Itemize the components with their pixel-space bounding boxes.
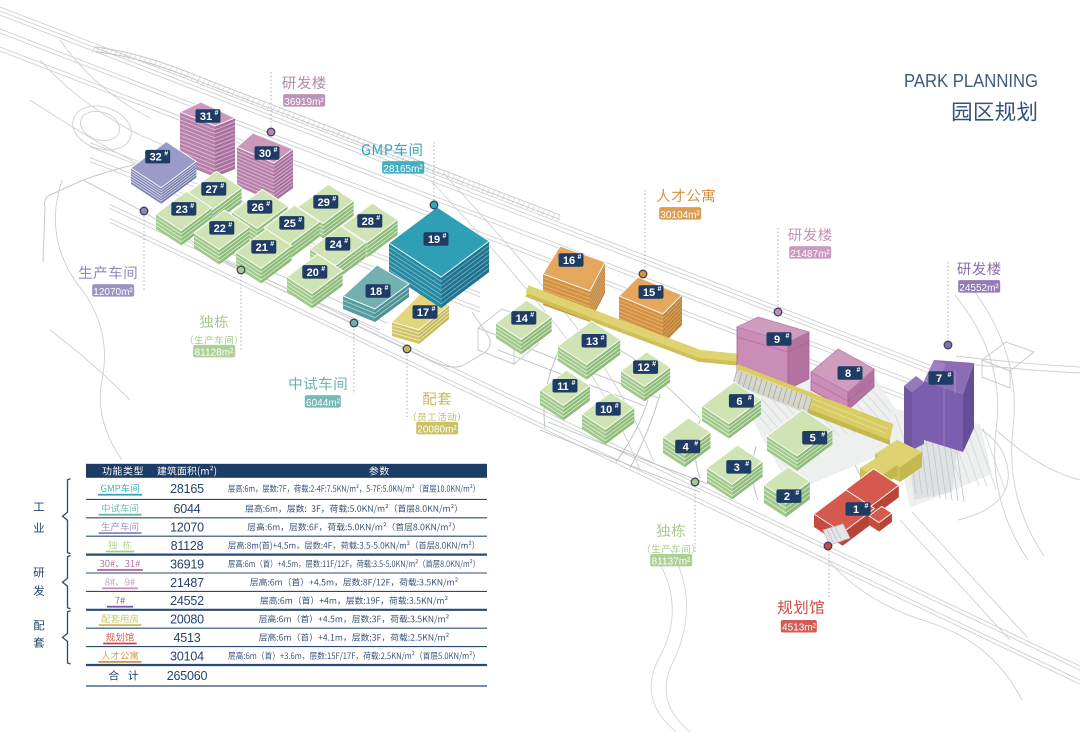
- svg-text:21487: 21487: [170, 576, 204, 590]
- svg-text:24: 24: [330, 239, 343, 251]
- svg-text:#: #: [578, 254, 582, 261]
- svg-text:17: 17: [417, 307, 429, 319]
- svg-text:#: #: [220, 183, 224, 190]
- svg-text:PARK PLANNING: PARK PLANNING: [904, 70, 1038, 91]
- svg-text:#: #: [748, 395, 752, 402]
- svg-text:#: #: [658, 286, 662, 293]
- svg-text:23: 23: [176, 204, 188, 216]
- svg-text:26: 26: [252, 202, 264, 214]
- svg-text:30104m²: 30104m²: [660, 210, 700, 221]
- svg-text:4513m²: 4513m²: [782, 623, 817, 634]
- svg-text:36919m²: 36919m²: [284, 97, 324, 108]
- svg-text:27: 27: [206, 184, 218, 196]
- svg-text:4513: 4513: [173, 631, 200, 645]
- svg-text:#: #: [321, 266, 325, 273]
- svg-text:12070m²: 12070m²: [93, 287, 133, 298]
- svg-text:#: #: [344, 238, 348, 245]
- svg-text:81128m²: 81128m²: [195, 348, 234, 359]
- svg-text:20080: 20080: [170, 613, 204, 627]
- svg-text:22: 22: [214, 223, 226, 235]
- svg-text:6044m²: 6044m²: [306, 398, 341, 409]
- svg-text:10: 10: [600, 404, 612, 416]
- svg-text:#: #: [948, 372, 952, 379]
- svg-text:28165: 28165: [170, 482, 204, 496]
- svg-text:4: 4: [683, 442, 690, 454]
- svg-text:#: #: [652, 361, 656, 368]
- svg-text:#: #: [865, 503, 869, 510]
- svg-text:#: #: [274, 147, 278, 154]
- svg-text:5: 5: [810, 433, 816, 445]
- svg-text:#: #: [821, 432, 825, 439]
- svg-text:#: #: [857, 367, 861, 374]
- svg-text:11: 11: [557, 381, 569, 393]
- svg-text:32: 32: [150, 152, 162, 164]
- svg-text:13: 13: [586, 336, 598, 348]
- svg-text:16: 16: [563, 255, 575, 267]
- svg-text:12070: 12070: [170, 521, 204, 535]
- svg-text:24552: 24552: [170, 594, 204, 608]
- svg-text:#: #: [190, 203, 194, 210]
- svg-text:30104: 30104: [170, 649, 204, 663]
- svg-text:#: #: [298, 217, 302, 224]
- svg-text:8: 8: [845, 368, 851, 380]
- svg-text:19: 19: [428, 234, 440, 246]
- svg-text:6044: 6044: [173, 502, 200, 516]
- svg-text:31: 31: [200, 111, 212, 123]
- svg-text:14: 14: [516, 313, 529, 325]
- svg-text:20: 20: [307, 267, 319, 279]
- svg-text:25: 25: [284, 218, 296, 230]
- svg-text:#: #: [795, 490, 799, 497]
- svg-text:9: 9: [774, 334, 780, 346]
- svg-text:29: 29: [318, 197, 330, 209]
- svg-text:#: #: [615, 403, 619, 410]
- svg-text:28165m²: 28165m²: [383, 164, 423, 175]
- svg-text:#: #: [164, 151, 168, 158]
- svg-text:30: 30: [259, 148, 271, 160]
- svg-text:#: #: [601, 335, 605, 342]
- svg-text:6: 6: [736, 396, 742, 408]
- svg-text:15: 15: [643, 287, 655, 299]
- svg-text:24552m²: 24552m²: [959, 283, 999, 294]
- svg-text:#: #: [332, 196, 336, 203]
- svg-text:12: 12: [637, 362, 649, 374]
- svg-text:#: #: [530, 312, 534, 319]
- svg-text:#: #: [385, 285, 389, 292]
- svg-text:7: 7: [936, 373, 942, 385]
- svg-text:21487m²: 21487m²: [790, 249, 830, 260]
- svg-text:21: 21: [256, 242, 268, 254]
- svg-text:#: #: [266, 201, 270, 208]
- svg-text:#: #: [694, 441, 698, 448]
- svg-text:36919: 36919: [170, 557, 204, 571]
- svg-text:81128: 81128: [171, 539, 204, 553]
- svg-text:#: #: [572, 380, 576, 387]
- svg-text:#: #: [443, 233, 447, 240]
- svg-text:81137m²: 81137m²: [652, 557, 691, 568]
- svg-text:#: #: [432, 306, 436, 313]
- svg-text:#: #: [786, 333, 790, 340]
- svg-text:28: 28: [362, 216, 374, 228]
- svg-text:18: 18: [370, 286, 382, 298]
- svg-text:265060: 265060: [167, 669, 208, 683]
- svg-text:#: #: [270, 241, 274, 248]
- svg-text:#: #: [745, 461, 749, 468]
- svg-text:#: #: [228, 222, 232, 229]
- svg-text:20080m²: 20080m²: [417, 425, 457, 436]
- svg-text:2: 2: [784, 491, 790, 503]
- svg-text:3: 3: [734, 462, 740, 474]
- svg-text:1: 1: [853, 504, 859, 516]
- svg-text:#: #: [215, 110, 219, 117]
- svg-text:#: #: [376, 215, 380, 222]
